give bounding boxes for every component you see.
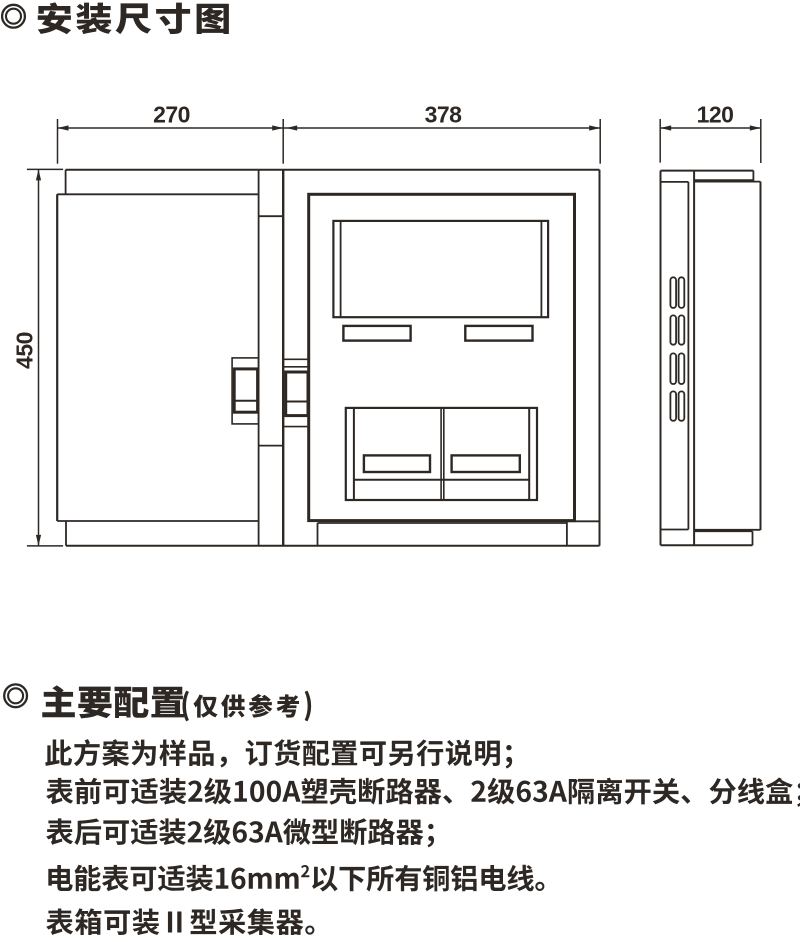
svg-text:378: 378 <box>425 102 463 128</box>
svg-text:270: 270 <box>153 102 190 128</box>
svg-text:450: 450 <box>11 332 37 369</box>
svg-text:120: 120 <box>697 102 734 128</box>
